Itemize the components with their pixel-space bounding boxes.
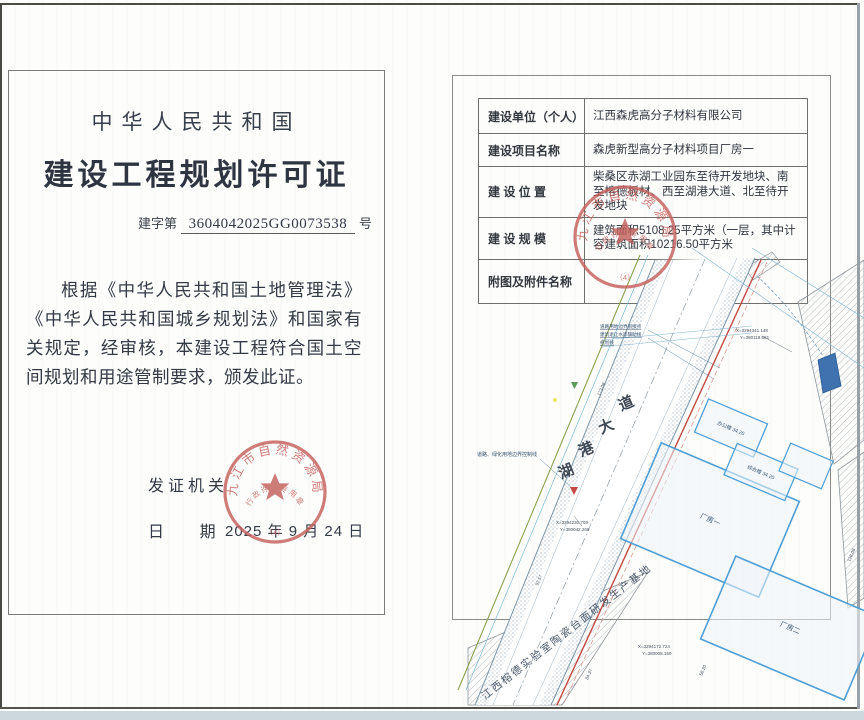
scan-edge-bottom (0, 707, 860, 709)
country-heading: 中华人民共和国 (8, 106, 385, 136)
issuer-label: 发证机关 (148, 472, 228, 496)
permit-number: 3604042025GG0073538 (181, 216, 356, 234)
permit-number-suffix: 号 (359, 216, 372, 231)
dim: 84.37 (584, 668, 593, 681)
row-label: 建设项目名称 (479, 134, 585, 167)
callout-line: 规划线 (600, 339, 614, 346)
row-value: 江西森虎高分子材料有限公司 (585, 99, 808, 134)
dim: 58.20 (698, 664, 707, 677)
permit-number-line: 建字第 3604042025GG0073538 号 (138, 213, 372, 233)
date-label: 日 期 (148, 518, 216, 542)
coord-leader-1 (762, 336, 792, 352)
yellow-dot (553, 398, 557, 402)
callout-line: 道路用地边界衔接点 (600, 323, 642, 330)
hatched-parcel-right (838, 452, 864, 608)
certificate-body-text: 根据《中华人民共和国土地管理法》《中华人民共和国城乡规划法》和国家有关规定，经审… (26, 276, 362, 392)
scan-edge-band (0, 711, 864, 720)
green-marker (571, 382, 578, 389)
table-row: 建设项目名称 森虎新型高分子材料项目厂房一 (479, 134, 808, 167)
certificate-title: 建设工程规划许可证 (8, 150, 385, 194)
row-label: 建 设 位 置 (479, 167, 585, 218)
building-office: 办公楼 34.20 (695, 399, 768, 457)
permit-number-prefix: 建字第 (138, 216, 177, 231)
row-value: 柴桑区赤湖工业园东至待开发地块、南至榕德板材、西至湖港大道、北至待开发地块 (585, 167, 808, 218)
scan-edge-top (0, 3, 860, 5)
coord-x: X=3294172.724 (638, 644, 670, 649)
coord-x: X=3294230.709 (556, 520, 588, 525)
row-label: 建设单位（个人） (479, 99, 585, 134)
date-value: 2025 年 9 月 24 日 (225, 520, 364, 541)
site-plan-map: 厂房一 厂房二 办公楼 34.20 综合楼 34.20 道 大 港 湖 X=32… (452, 248, 864, 706)
coord-y: Y=380042.269 (560, 527, 590, 532)
table-row: 建 设 位 置 柴桑区赤湖工业园东至待开发地块、南至榕德板材、西至湖港大道、北至… (479, 167, 808, 218)
row-value: 森虎新型高分子材料项目厂房一 (585, 134, 808, 167)
left-callout-label: 道路、绿化用地边界控制线 (477, 451, 537, 458)
callout-line: 建筑退让水岸辅助线 (600, 331, 642, 338)
table-row: 建设单位（个人） 江西森虎高分子材料有限公司 (479, 99, 808, 134)
coord-y: Y=380008.150 (642, 651, 672, 656)
scanned-permit-document: 中华人民共和国 建设工程规划许可证 建字第 3604042025GG007353… (0, 0, 864, 720)
scan-edge-left (0, 3, 2, 709)
coord-x: X=3294341.148 (736, 328, 768, 333)
